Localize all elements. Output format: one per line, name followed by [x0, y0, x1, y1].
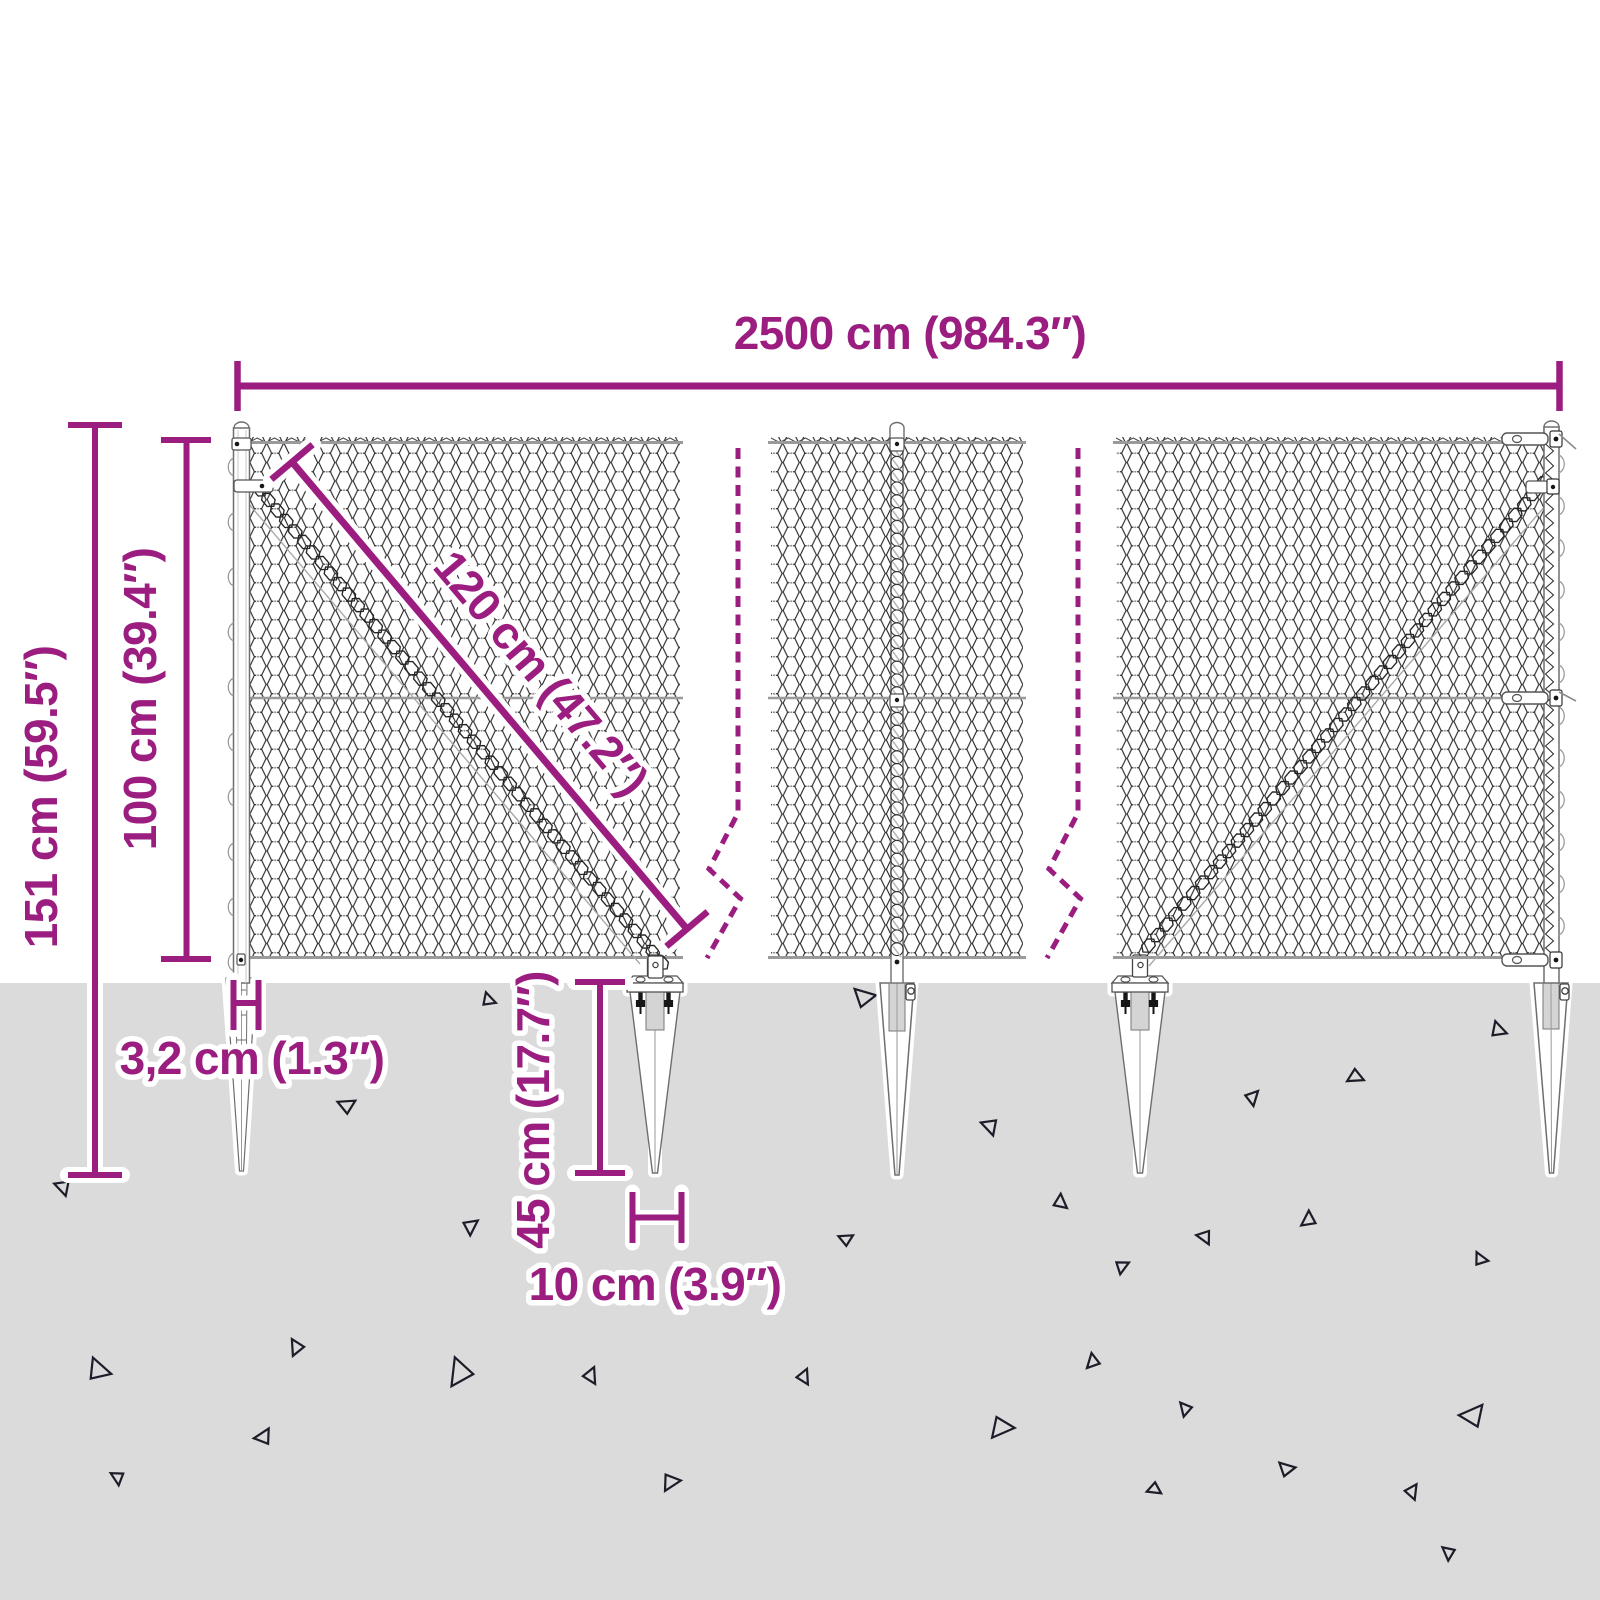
svg-text:3,2 cm (1.3″): 3,2 cm (1.3″) — [120, 1032, 385, 1084]
svg-text:45 cm (17.7″): 45 cm (17.7″) — [507, 971, 559, 1249]
svg-text:2500 cm (984.3″): 2500 cm (984.3″) — [734, 307, 1087, 359]
svg-text:151 cm (59.5″): 151 cm (59.5″) — [15, 646, 67, 949]
svg-text:10 cm (3.9″): 10 cm (3.9″) — [529, 1258, 782, 1310]
svg-text:100 cm (39.4″): 100 cm (39.4″) — [114, 548, 166, 851]
